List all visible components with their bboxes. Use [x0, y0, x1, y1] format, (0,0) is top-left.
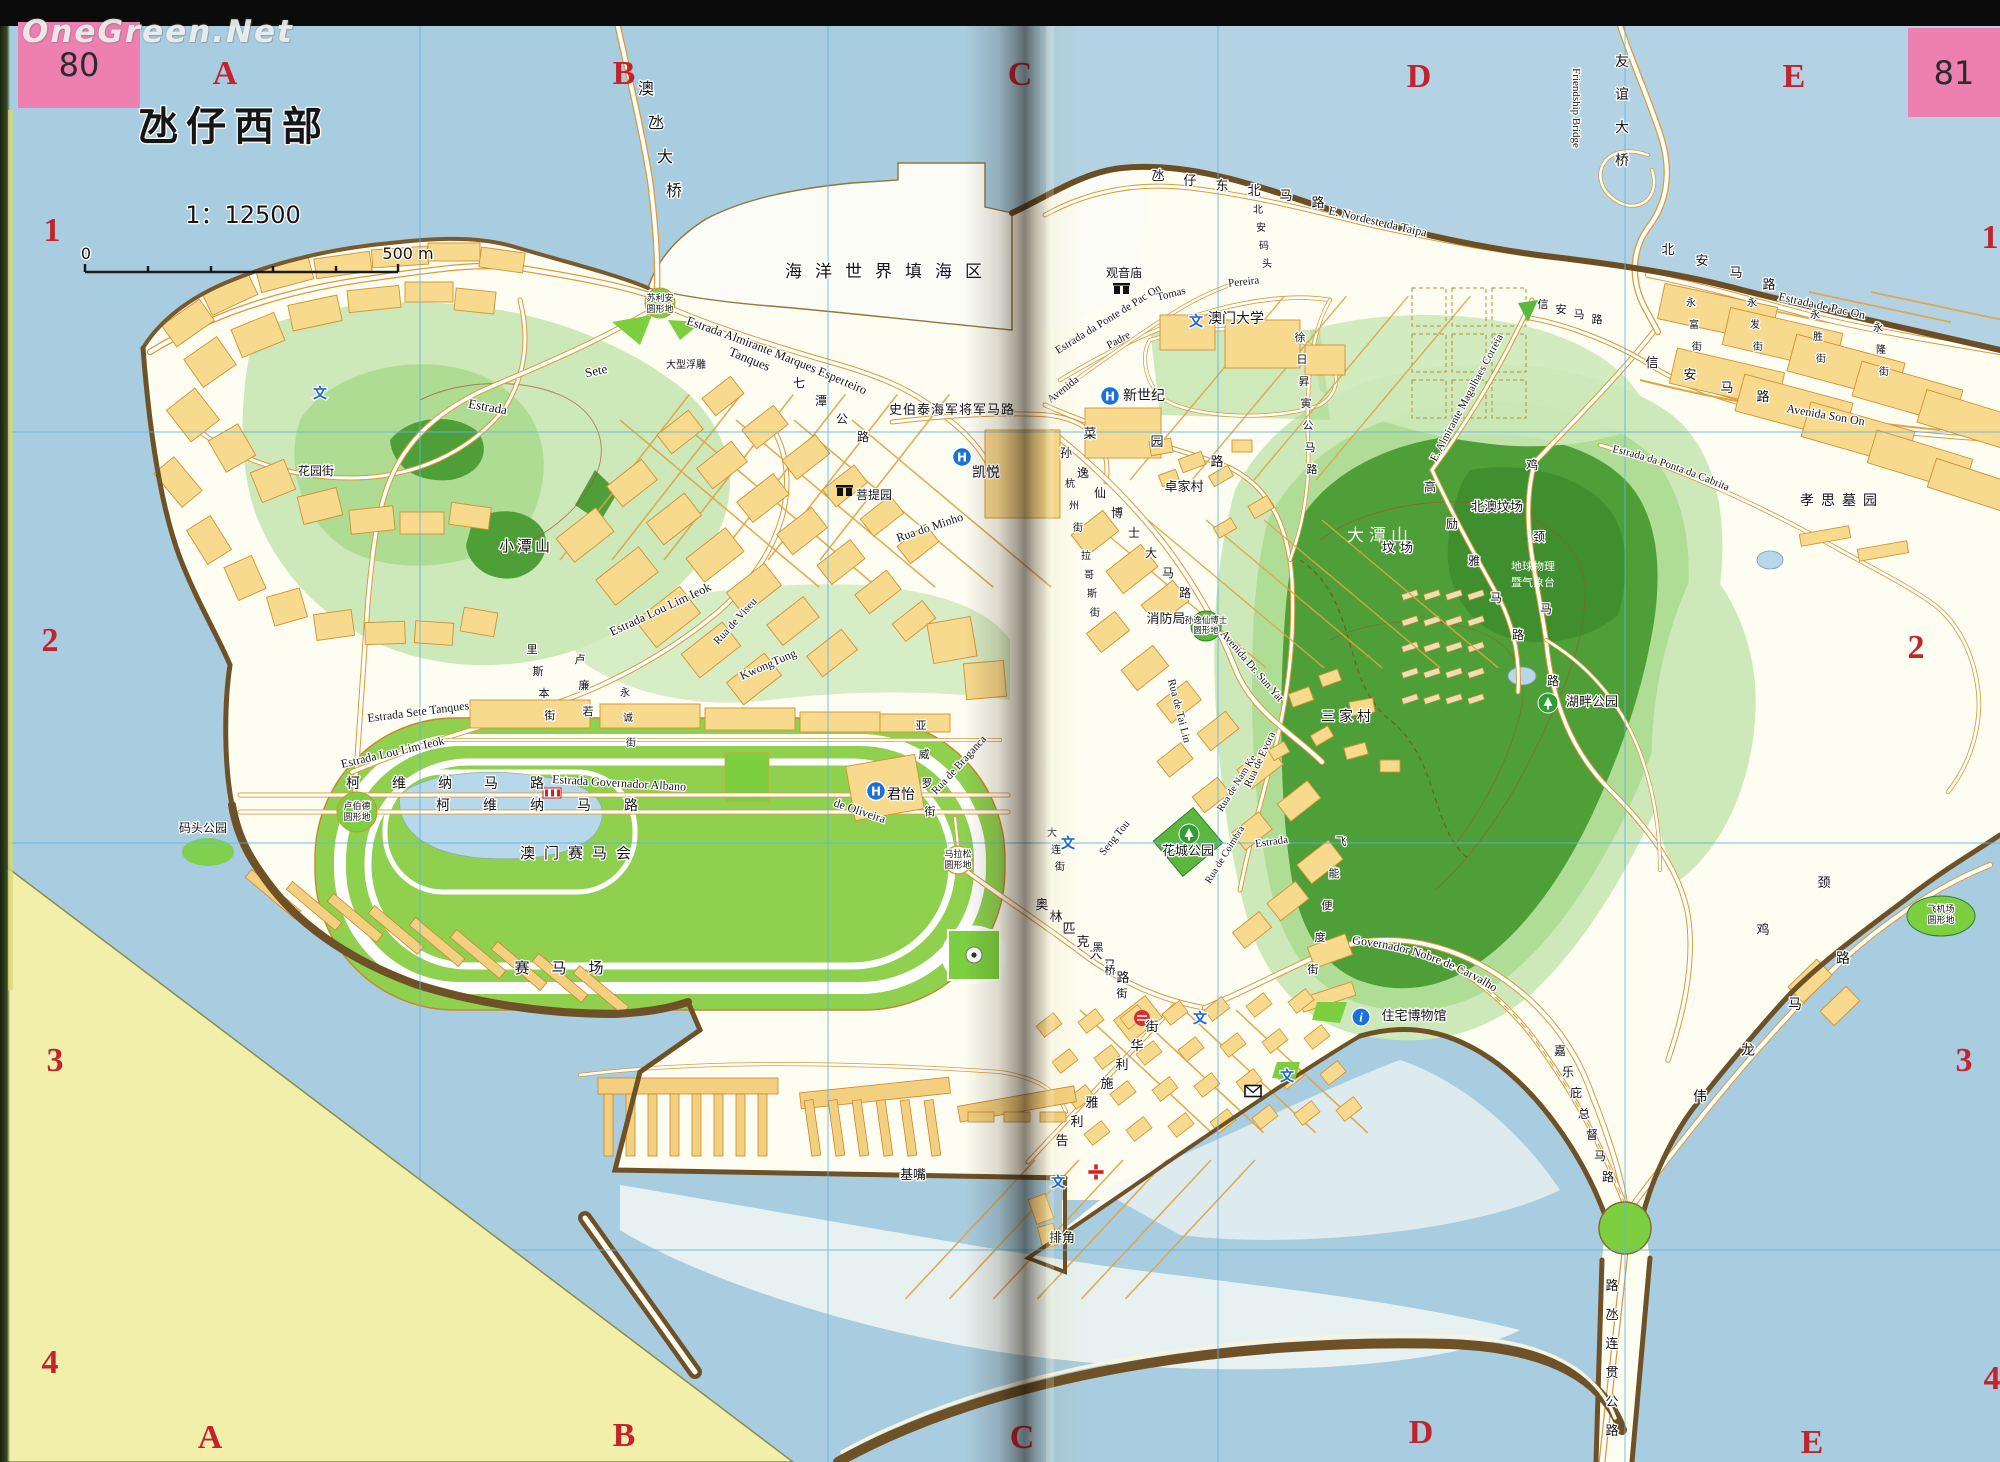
map-label: 码头公园	[179, 821, 227, 835]
map-label: 励	[1446, 517, 1458, 531]
map-label: 富	[1689, 318, 1699, 331]
map-label: 纳	[530, 798, 544, 814]
map-label: 隆	[1876, 343, 1886, 356]
map-label: 马	[1729, 266, 1742, 281]
svg-text:文: 文	[1193, 1010, 1208, 1027]
scan-left-sliver	[8, 110, 13, 990]
map-label: 卓家村	[1164, 479, 1203, 495]
map-label: 纳	[438, 776, 452, 792]
grid-col-bottom-D: D	[1409, 1414, 1434, 1451]
map-label: 氹	[1605, 1308, 1618, 1323]
map-label: 林	[1049, 910, 1062, 925]
map-label: 告	[1055, 1134, 1068, 1149]
map-label: 卢伯德	[343, 800, 370, 812]
page-number-left: 80	[59, 46, 100, 84]
map-label: 杭	[1065, 477, 1075, 490]
map-label: 花园街	[298, 463, 334, 478]
atlas-page-spread: HHH文文文文文文i 氹仔西部1：125000500 m澳氹大桥苏利安圆形地Es…	[0, 0, 2000, 1462]
map-label: 谊	[1615, 87, 1629, 103]
map-label: 排角	[1049, 1231, 1075, 1246]
map-label: 桥	[666, 181, 682, 200]
map-label: 连	[1051, 843, 1061, 856]
map-label: 信	[1538, 298, 1549, 311]
map-label: 州	[1069, 500, 1079, 512]
map-label: 菜	[1083, 427, 1096, 442]
map-label: 基嘴	[900, 1168, 926, 1183]
hotel-icon-grandview: H	[867, 782, 886, 801]
map-label: 路	[1210, 454, 1223, 470]
map-label: 便	[1322, 899, 1333, 912]
map-label: 马	[1305, 441, 1316, 454]
svg-text:文: 文	[313, 385, 328, 402]
map-label: 拉	[1081, 549, 1091, 562]
map-label: 街	[1816, 352, 1826, 365]
hotel-icon-hyatt: H	[953, 448, 972, 467]
map-label: 凯悦	[972, 465, 1000, 481]
map-label: 路	[1512, 627, 1524, 642]
map-label: 北	[1661, 243, 1674, 258]
map-label: 龙	[1741, 1043, 1755, 1059]
post-office-icon	[1245, 1086, 1261, 1097]
grid-row-left-3: 3	[47, 1042, 64, 1079]
map-label: 路	[1762, 277, 1775, 293]
watermark: OneGreen.Net	[22, 14, 294, 50]
svg-text:文: 文	[1051, 1174, 1066, 1191]
map-label: 克	[1076, 935, 1089, 950]
map-label: 公	[1303, 419, 1314, 432]
map-label: 园	[1150, 435, 1163, 450]
map-label: 连	[1605, 1336, 1618, 1352]
map-label: 安	[1256, 221, 1266, 234]
map-label: 高	[1424, 479, 1436, 494]
map-label: 湖畔公园	[1566, 695, 1618, 710]
map-label: 桥	[1615, 153, 1629, 169]
map-label: 氹	[648, 113, 664, 132]
map-label: 马	[1279, 189, 1292, 204]
grid-row-right-1: 1	[1982, 219, 1999, 256]
map-label: 安	[1556, 302, 1567, 316]
map-label: 马	[1162, 566, 1174, 580]
rotunda-lubode-circle	[337, 792, 377, 832]
map-label: 路	[1311, 195, 1324, 211]
map-label: 雅	[1468, 553, 1480, 568]
map-label: 马拉松	[944, 848, 971, 860]
map-label: 街	[1073, 521, 1083, 534]
map-label: 匹	[1062, 922, 1075, 937]
svg-text:文: 文	[1061, 835, 1076, 852]
map-label: 大	[657, 147, 673, 166]
map-label: 鸡	[1756, 922, 1769, 938]
map-label: 友	[1615, 54, 1629, 70]
map-label: 路	[1592, 313, 1603, 326]
svg-text:H: H	[957, 451, 967, 465]
grid-row-right-4: 4	[1984, 1360, 2000, 1397]
map-label: 仙	[1094, 486, 1106, 500]
map-label: 寅	[1301, 396, 1312, 410]
hotel-icon-new-century: H	[1101, 387, 1120, 406]
map-label: 庇	[1570, 1085, 1582, 1100]
map-label: 永	[1686, 296, 1696, 309]
page-number-tab-right: 81	[1908, 28, 2000, 117]
map-label: 大	[1145, 546, 1157, 560]
map-label: 孝思墓园	[1800, 493, 1884, 509]
map-label: 永	[1810, 308, 1820, 321]
map-label: 澳	[638, 79, 654, 98]
map-label: 胜	[1813, 331, 1823, 343]
map-label: 安	[1683, 368, 1696, 383]
map-label: 仔	[1183, 174, 1196, 189]
svg-text:i: i	[1359, 1010, 1363, 1025]
park-icon-lakeside	[1538, 693, 1558, 713]
map-label: 街	[1145, 1020, 1158, 1035]
map-label: 圆形地	[343, 811, 370, 823]
svg-text:文: 文	[1280, 1068, 1295, 1085]
map-label: 1：12500	[185, 201, 301, 229]
map-label: 街	[1692, 340, 1702, 353]
grid-col-top-E: E	[1783, 58, 1806, 95]
map-label: 小潭山	[499, 537, 553, 555]
map-label: 永	[1873, 321, 1883, 334]
grid-col-bottom-C: C	[1010, 1419, 1035, 1456]
map-label: 街	[1090, 606, 1100, 619]
map-label: 街	[1117, 986, 1128, 1000]
map-label: 博	[1111, 505, 1123, 520]
grid-col-bottom-A: A	[198, 1419, 223, 1456]
map-label: 永	[620, 686, 630, 699]
map-label: 奥	[1035, 898, 1048, 913]
map-label: 信	[1645, 356, 1658, 371]
map-label: 潭	[815, 394, 827, 408]
stadium-icon	[966, 947, 982, 963]
map-label: 飞	[1336, 835, 1347, 848]
grid-row-left-4: 4	[42, 1344, 59, 1381]
grid-col-top-C: C	[1008, 56, 1033, 93]
map-label: 鸡	[1526, 457, 1538, 472]
map-label: 公	[1605, 1395, 1618, 1410]
map-label: 君怡	[887, 787, 915, 803]
map-label: 安	[1695, 254, 1708, 269]
map-label: 500 m	[382, 244, 433, 263]
page-number-right: 81	[1934, 54, 1975, 92]
map-label: 士	[1128, 526, 1140, 540]
map-label: 威	[919, 748, 930, 761]
map-label: 东	[1215, 179, 1228, 194]
grid-col-top-D: D	[1407, 58, 1432, 95]
map-label: 花城公园	[1162, 843, 1214, 859]
map-label: 大	[1047, 826, 1057, 839]
map-label: 诚	[623, 712, 633, 724]
map-label: 颈	[1533, 530, 1545, 544]
map-label: 住宅博物馆	[1381, 1009, 1446, 1024]
map-label: 路	[1756, 389, 1769, 405]
map-label: 路	[1836, 951, 1850, 967]
map-label: 氹	[1151, 169, 1164, 184]
map-label: 街	[626, 736, 636, 749]
map-label: 圆形地	[1927, 914, 1954, 926]
map-label: 街	[1055, 860, 1065, 873]
map-label: 马	[484, 776, 498, 792]
map-label: 维	[392, 776, 406, 792]
map-label: 利	[1115, 1058, 1128, 1073]
grid-row-right-3: 3	[1956, 1042, 1973, 1079]
map-label: 能	[1329, 866, 1340, 880]
map-label: 消防局	[1146, 611, 1185, 627]
school-icon-nw: 文	[313, 385, 328, 402]
map-label: 北	[1253, 204, 1263, 216]
map-label: 街	[1753, 340, 1763, 353]
map-label: 卢	[575, 653, 586, 666]
map-label: 斯	[1087, 587, 1097, 600]
map-label: 度	[1315, 930, 1326, 944]
map-label: 路	[1547, 673, 1559, 688]
map-label: 街	[925, 804, 936, 818]
map-label: 大	[1615, 120, 1629, 136]
svg-text:文: 文	[1189, 313, 1204, 330]
grandstand-icon	[543, 788, 561, 798]
map-label: 菩提园	[856, 487, 892, 502]
grid-col-top-A: A	[213, 55, 238, 92]
map-label: 亚	[916, 719, 927, 732]
map-label: 伟	[1693, 1089, 1707, 1105]
grid-row-left-2: 2	[42, 622, 59, 659]
map-label: 路	[1602, 1169, 1614, 1184]
map-label: 柯	[346, 776, 360, 792]
map-label: 黑	[1093, 941, 1104, 954]
map-label: 街	[545, 708, 556, 722]
map-label: 氹仔西部	[138, 104, 330, 150]
map-label: 大潭山	[1347, 526, 1413, 546]
map-label: 路	[1179, 585, 1191, 600]
school-icon-paijiao: 文	[1051, 1174, 1066, 1191]
map-label: 大型浮雕	[666, 358, 706, 371]
map-label: 马	[577, 798, 591, 814]
map-label: 里	[527, 643, 538, 656]
map-label: 斯	[533, 665, 544, 678]
map-label: 圆形地	[1193, 625, 1219, 636]
map-label: 颈	[1817, 876, 1830, 891]
map-label: 街	[1308, 962, 1319, 976]
map-label: 马	[1788, 997, 1802, 1013]
map-label: 公	[836, 412, 848, 426]
map-label: 观音庙	[1106, 265, 1142, 280]
map-label: 路	[857, 429, 869, 444]
map-label: 若	[583, 705, 594, 718]
map-label: 头	[1262, 258, 1272, 270]
map-label: 柯	[436, 798, 450, 814]
park-icon-flower-city	[1179, 824, 1199, 844]
map-label: 马	[1490, 591, 1502, 605]
school-icon-oldtown-1: 文	[1193, 1010, 1208, 1027]
map-canvas: HHH文文文文文文i 氹仔西部1：125000500 m澳氹大桥苏利安圆形地Es…	[0, 0, 2000, 1462]
grid-row-right-2: 2	[1908, 629, 1925, 666]
map-label: 桥	[1105, 964, 1116, 977]
svg-text:H: H	[871, 785, 881, 799]
map-label: 路	[1605, 1278, 1618, 1294]
map-label: 马	[1574, 308, 1585, 321]
map-label: 孙逸仙博士	[1185, 615, 1228, 626]
grid-col-bottom-B: B	[613, 1417, 636, 1454]
map-label: 澳门大学	[1208, 311, 1264, 327]
map-label: 路	[624, 798, 638, 814]
grid-row-left-1: 1	[44, 212, 61, 249]
pier-park-green	[182, 838, 234, 866]
map-label: 永	[1747, 296, 1757, 309]
map-label: 暨气象台	[1511, 575, 1555, 589]
map-label: 史伯泰海军将军马路	[889, 402, 1015, 418]
map-label: 本	[539, 686, 550, 700]
map-label: 乐	[1562, 1065, 1574, 1079]
scan-top-edge	[0, 0, 2000, 26]
svg-text:H: H	[1105, 390, 1115, 404]
map-label: 澳门赛马会	[520, 844, 640, 862]
map-label: 路	[1116, 970, 1129, 986]
map-label: 华	[1130, 1039, 1143, 1054]
grid-col-top-B: B	[613, 55, 636, 92]
map-label: 昇	[1299, 375, 1310, 388]
map-label: 日	[1297, 353, 1308, 366]
map-label: 路	[1605, 1423, 1618, 1439]
map-label: 孙	[1060, 446, 1072, 460]
map-label: 逸	[1077, 466, 1089, 480]
map-label: 雅	[1085, 1096, 1098, 1111]
map-label: 廉	[579, 678, 590, 692]
map-label: 海洋世界填海区	[785, 262, 995, 282]
map-label: 北	[1247, 184, 1260, 199]
map-label: 圆形地	[646, 303, 673, 315]
map-label: 徐	[1295, 330, 1306, 344]
map-label: 马	[1720, 381, 1733, 396]
map-label: 哥	[1084, 569, 1094, 581]
map-label: 地球物理	[1511, 559, 1555, 573]
map-label: 北澳坟场	[1471, 499, 1523, 515]
school-icon-central: 文	[1061, 835, 1076, 852]
map-label: 三家村	[1321, 708, 1375, 725]
map-label: 路	[1307, 463, 1318, 476]
map-label: 路	[530, 776, 544, 792]
school-icon-university: 文	[1189, 313, 1204, 330]
map-label: 利	[1070, 1115, 1083, 1130]
map-label: Friendship Bridge	[1570, 68, 1582, 148]
map-label: 新世纪	[1123, 388, 1165, 404]
map-label: 贯	[1605, 1366, 1618, 1381]
map-label: 赛马场	[514, 959, 625, 977]
map-label: 圆形地	[944, 859, 971, 871]
grid-col-bottom-E: E	[1801, 1424, 1824, 1461]
school-icon-oldtown-2: 文	[1280, 1068, 1295, 1085]
info-icon-houses-museum: i	[1352, 1008, 1370, 1026]
map-label: 总	[1578, 1107, 1590, 1121]
map-label: 发	[1750, 318, 1760, 331]
map-label: 街	[1879, 365, 1889, 378]
map-label: 维	[483, 798, 497, 814]
map-label: 马	[1540, 602, 1552, 616]
map-label: 飞机场	[1927, 903, 1954, 915]
map-label: 七	[793, 376, 805, 390]
map-label: 苏利安	[646, 292, 673, 304]
map-label: 督	[1586, 1127, 1598, 1142]
map-label: 嘉	[1554, 1044, 1566, 1058]
map-label: 0	[81, 244, 91, 263]
map-label: 码	[1259, 240, 1269, 252]
map-label: 马	[1594, 1149, 1606, 1163]
map-label: 施	[1100, 1077, 1113, 1092]
